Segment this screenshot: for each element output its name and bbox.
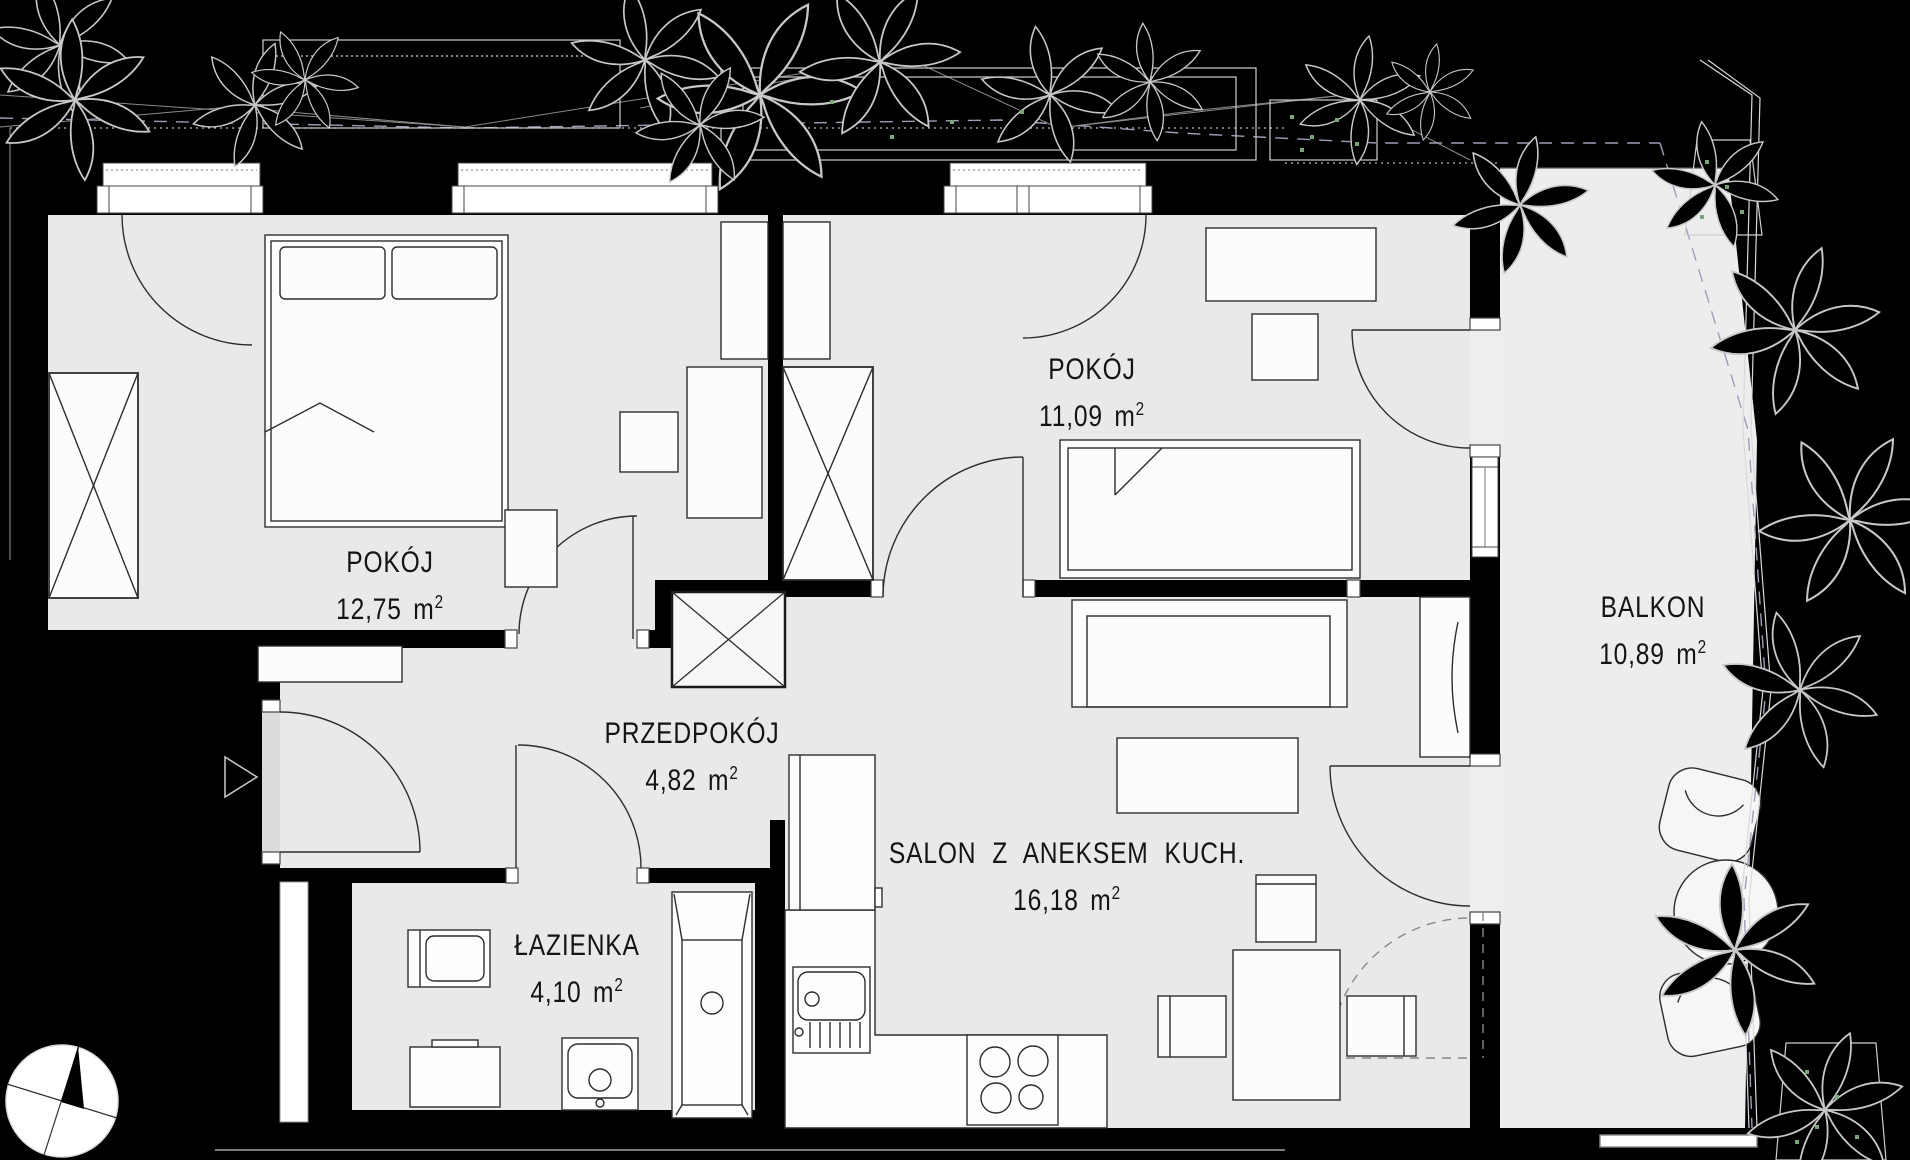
sofa [1072,600,1347,707]
room-area: 4,10m2 [514,965,640,1012]
room-name: PRZEDPOKÓJ [605,714,780,753]
gap-door-balkon-salon [1470,766,1500,912]
window-top-1 [97,163,263,213]
toilet [408,930,490,987]
balcony-edge-bar [1600,1135,1757,1147]
room-area: 12,75m2 [336,582,444,629]
wardrobe-x-left [49,373,138,598]
dining-chair-left [1158,996,1226,1057]
room-label-salon: SALON Z ANEKSEM KUCH. 16,18m2 [850,834,1284,920]
hall-shelf [258,646,402,682]
desk-pokoj1 [687,367,762,518]
compass-icon [6,1045,118,1157]
wall-left-upper [10,215,48,630]
room-area: 4,82m2 [605,753,780,800]
room-area: 11,09m2 [1039,389,1145,436]
desk-pokoj2 [1206,228,1376,301]
window-right-pokoj2 [1472,457,1498,557]
duct-strip [280,882,308,1122]
wardrobe-x-pokoj2 [783,367,873,580]
gap-door-entrance [262,712,280,852]
gap-door-lazienka [518,868,637,883]
room-area: 16,18m2 [889,873,1245,920]
bed-single [1060,440,1360,578]
wall-room1-room2 [768,215,783,592]
floor-plan-drawing [0,0,1910,1160]
shaft-box [672,592,785,687]
hob [967,1035,1058,1125]
window-top-3 [944,163,1152,213]
shelf-pokoj1 [721,222,768,359]
wall-bottom-salon [770,1128,1500,1160]
room-label-balkon: BALKON 10,89m2 [1587,588,1718,674]
kitchen-sink [793,967,870,1053]
chair-pokoj1 [620,412,678,472]
washing-machine [410,1040,500,1107]
room-name: POKÓJ [1039,350,1145,389]
room-name: POKÓJ [336,543,444,582]
wall-kitchen [770,820,785,1128]
shelf-pokoj2 [783,222,830,359]
bed-double [265,235,508,527]
coffee-table [1117,738,1298,813]
room-area: 10,89m2 [1599,627,1707,674]
floor-plan: POKÓJ 12,75m2 POKÓJ 11,09m2 PRZEDPOKÓJ 4… [0,0,1910,1160]
dining-table [1233,950,1340,1100]
gap-door-pokoj2 [883,580,1023,597]
gap-door-pokoj1 [517,630,637,648]
room-name: BALKON [1599,588,1707,627]
room-name: SALON Z ANEKSEM KUCH. [889,834,1245,873]
bath-sink [562,1038,638,1110]
bathtub [672,892,752,1118]
room-label-pokoj-1: POKÓJ 12,75m2 [324,543,455,629]
tv-cabinet [1420,597,1470,757]
room-label-pokoj-2: POKÓJ 11,09m2 [1027,350,1156,436]
chair-pokoj2 [1252,314,1318,380]
room-label-przedpokoj: PRZEDPOKÓJ 4,82m2 [585,714,798,800]
nightstand [505,510,557,587]
gap-door-balkon-pokoj2 [1470,330,1500,445]
room-name: ŁAZIENKA [514,926,640,965]
room-label-lazienka: ŁAZIENKA 4,10m2 [500,926,653,1012]
dining-chair-right [1347,996,1416,1056]
